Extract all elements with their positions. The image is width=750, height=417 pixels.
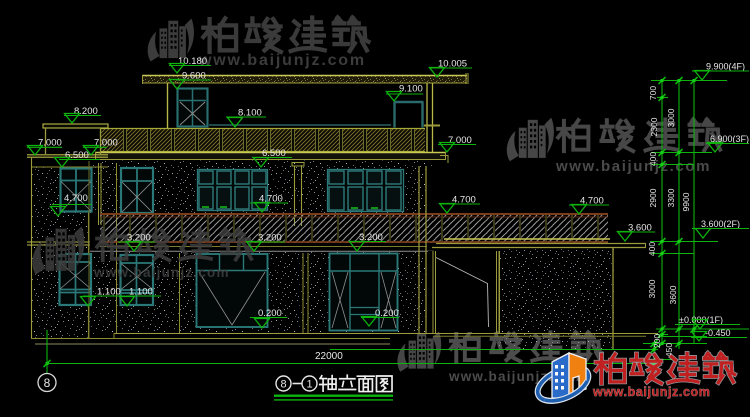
svg-text:400: 400 [648,152,658,166]
svg-text:www.baijunjz.com: www.baijunjz.com [198,52,366,69]
svg-text:www.baijunjz.com: www.baijunjz.com [592,385,710,399]
svg-text:-0.450: -0.450 [705,328,731,338]
svg-text:8: 8 [44,376,51,390]
svg-text:9.100: 9.100 [399,84,423,95]
svg-text:2300: 2300 [649,117,659,136]
svg-text:9900: 9900 [681,192,691,211]
svg-text:9.900(4F): 9.900(4F) [706,62,745,72]
svg-text:3000: 3000 [647,279,657,298]
svg-text:4.700: 4.700 [64,193,88,204]
svg-text:400: 400 [647,242,657,256]
svg-text:8: 8 [280,379,286,391]
svg-text:200: 200 [652,334,662,348]
svg-text:www.baijunjz.com: www.baijunjz.com [93,265,230,280]
svg-text:3300: 3300 [666,188,676,207]
svg-text:2900: 2900 [648,188,658,207]
svg-text:700: 700 [648,86,658,100]
svg-text:3600: 3600 [668,285,678,304]
svg-text:3000: 3000 [666,108,676,127]
svg-text:22000: 22000 [315,351,343,362]
svg-text:1: 1 [306,379,312,391]
svg-text:www.baijunjz.com: www.baijunjz.com [555,158,711,175]
svg-text:3.600(2F): 3.600(2F) [701,219,740,229]
